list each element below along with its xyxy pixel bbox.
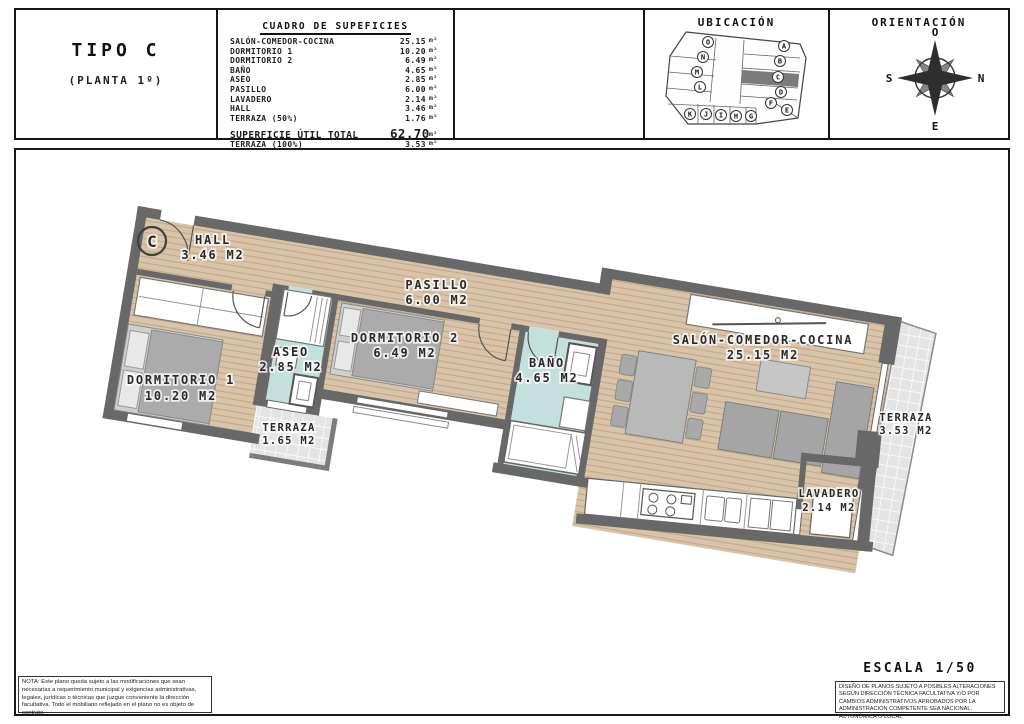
room-area-terraza-large: 3.53 M2 xyxy=(879,425,932,437)
room-area-terraza-small: 1.65 M2 xyxy=(262,435,315,447)
svg-text:I: I xyxy=(719,112,723,120)
room-area-bano: 4.65 M2 xyxy=(515,371,578,385)
shower xyxy=(276,289,332,346)
compass-main-points xyxy=(897,40,973,116)
kitchen-sink xyxy=(705,496,725,522)
svg-text:B: B xyxy=(778,58,782,66)
room-area-pasillo: 6.00 M2 xyxy=(405,293,468,307)
svg-text:L: L xyxy=(698,84,702,92)
svg-text:M: M xyxy=(695,69,699,77)
svg-text:H: H xyxy=(734,113,738,121)
room-area-dormitorio1: 10.20 M2 xyxy=(145,389,217,403)
room-area-salon: 25.15 M2 xyxy=(727,348,799,362)
room-label-dormitorio1: DORMITORIO 1 xyxy=(127,373,235,387)
chair xyxy=(694,366,712,388)
fridge xyxy=(748,498,771,529)
room-label-aseo: ASEO xyxy=(273,345,309,359)
chair xyxy=(610,405,628,427)
compass-east-label: E xyxy=(932,120,939,133)
compass-south-label: S xyxy=(886,72,893,85)
compass-rose: O N E S xyxy=(886,26,985,133)
svg-text:D: D xyxy=(779,89,783,97)
chair xyxy=(619,354,637,376)
room-label-hall: HALL xyxy=(195,233,231,247)
room-label-lavadero: LAVADERO xyxy=(799,488,860,500)
room-label-pasillo: PASILLO xyxy=(405,278,468,292)
svg-text:E: E xyxy=(785,107,789,115)
room-area-hall: 3.46 M2 xyxy=(181,248,244,262)
appliance xyxy=(770,500,793,531)
room-label-terraza-large: TERRAZA xyxy=(879,412,932,424)
site-map: A B C D E F G H I J K L M N O xyxy=(666,32,806,124)
room-area-lavadero: 2.14 M2 xyxy=(802,502,855,514)
unit-marker: C xyxy=(147,232,157,251)
room-label-salon: SALÓN-COMEDOR-COCINA xyxy=(673,332,854,347)
room-label-terraza-small: TERRAZA xyxy=(262,422,315,434)
svg-text:F: F xyxy=(769,100,773,108)
scale-label: ESCALA 1/50 xyxy=(836,661,1004,676)
svg-text:G: G xyxy=(749,113,753,121)
sink xyxy=(559,397,590,431)
chair xyxy=(685,418,703,440)
svg-text:C: C xyxy=(776,74,780,82)
room-label-bano: BAÑO xyxy=(529,355,565,370)
svg-text:O: O xyxy=(706,39,710,47)
floor-plan-drawing: C HALL 3.46 M2 PASILLO 6.00 M2 DORMITORI… xyxy=(0,0,1024,724)
svg-text:N: N xyxy=(701,54,705,62)
room-label-dormitorio2: DORMITORIO 2 xyxy=(351,331,459,345)
sofa-seat xyxy=(718,402,779,458)
floor-plan-sheet: { "header": { "tipo": {"title": "TIPO C"… xyxy=(0,0,1024,724)
chair xyxy=(690,392,708,414)
design-disclaimer: DISEÑO DE PLANOS SUJETO A POSIBLES ALTER… xyxy=(835,681,1005,713)
compass-west-label: O xyxy=(932,26,939,39)
compass-north-label: N xyxy=(978,72,985,85)
nota-disclaimer: NOTA: Este plano queda sujeto a las modi… xyxy=(18,676,212,713)
svg-text:J: J xyxy=(704,111,708,119)
chair xyxy=(615,380,633,402)
room-area-dormitorio2: 6.49 M2 xyxy=(373,346,436,360)
room-area-aseo: 2.85 M2 xyxy=(259,360,322,374)
